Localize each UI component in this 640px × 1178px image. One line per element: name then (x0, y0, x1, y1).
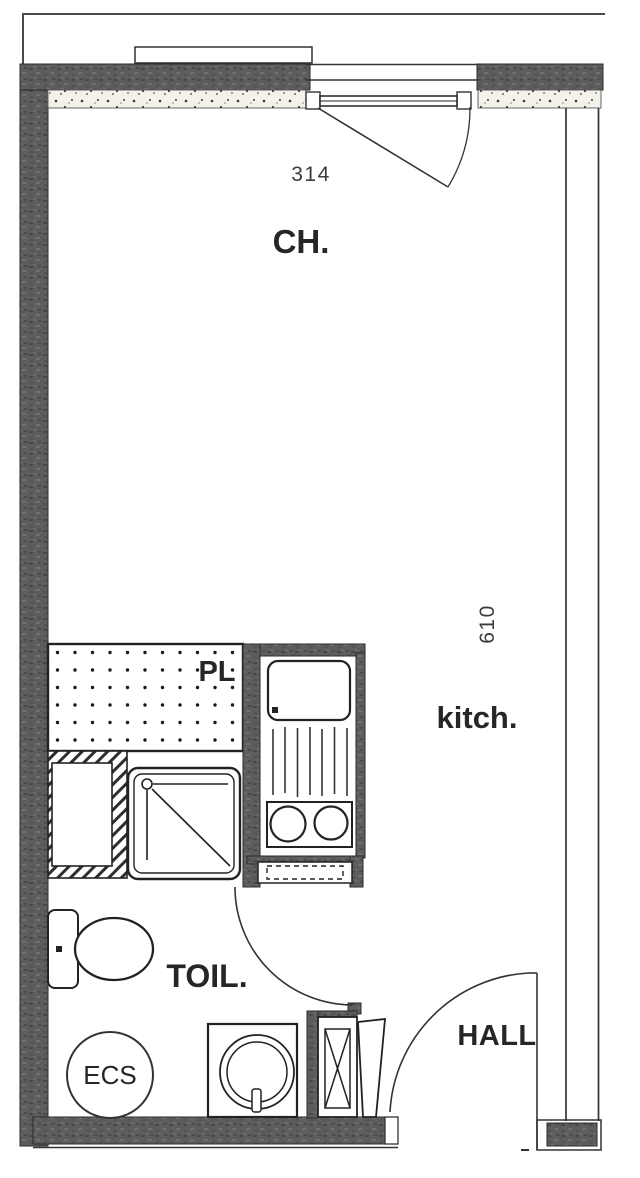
room-label-hall: HALL (457, 1020, 536, 1052)
water-heater: ECS (67, 1032, 153, 1118)
toilet-bowl (75, 918, 153, 980)
hob-two-burners (267, 802, 352, 847)
toilet-cistern-mark (56, 946, 62, 952)
shower (128, 768, 240, 879)
dimension-top-width: 314 (291, 163, 331, 186)
water-heater-label: ECS (83, 1060, 136, 1090)
washbasin (208, 1024, 297, 1117)
kitchen-wall-top (260, 644, 365, 656)
window-jamb-left (306, 92, 320, 109)
kitchen-plinth (258, 862, 352, 883)
bottom-wall-jamb (385, 1117, 398, 1144)
room-label-toil: TOIL. (166, 958, 247, 994)
shower-drain (142, 779, 152, 789)
kitchen-wall-right (356, 653, 365, 858)
shaft-wall-left (307, 1011, 318, 1118)
washbasin-tap (252, 1089, 261, 1112)
room-label-kitch: kitch. (437, 700, 518, 735)
hatched-unit (48, 751, 127, 878)
top-wall-right (477, 64, 603, 90)
insulation-band-right (478, 90, 601, 108)
closet-label-pl: PL (198, 656, 235, 688)
toilet-cistern (48, 910, 78, 988)
kitchen-wall-left (243, 644, 260, 887)
room-label-ch: CH. (273, 223, 330, 260)
balcony-sill (135, 47, 312, 63)
sink-drain-mark (272, 707, 278, 713)
technical-shaft (307, 1003, 361, 1118)
kitchen-sink (268, 661, 350, 720)
dimension-right-height: 610 (476, 604, 499, 644)
top-wall-left (20, 64, 310, 90)
left-wall (20, 64, 48, 1146)
hatched-unit-box (52, 763, 112, 866)
entry-pier (547, 1123, 597, 1146)
bottom-wall (33, 1117, 385, 1144)
insulation-band-left (48, 90, 306, 108)
floor-plan: ECS 314 CH. 610 kitch. PL TOIL. HALL (0, 0, 640, 1178)
window-jamb-right (457, 92, 471, 109)
